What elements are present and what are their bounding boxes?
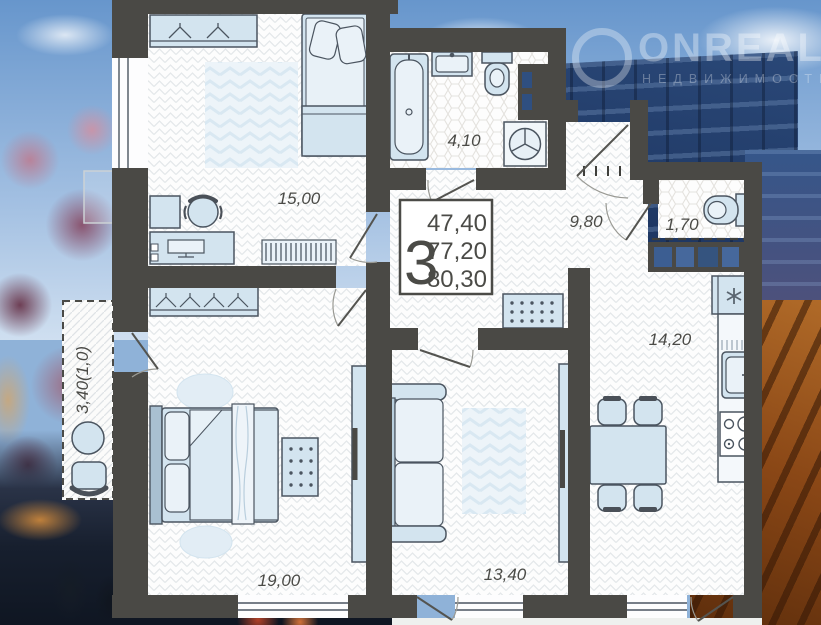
floor-plan: 15,00 4,10 9,80 1,70 14,20 19,00 13,40 3… <box>0 0 821 625</box>
rug-living-pattern <box>462 408 526 514</box>
toilet-bathroom <box>482 52 512 95</box>
label-bedroom-main: 19,00 <box>258 571 301 590</box>
fluffy-rug <box>177 374 233 410</box>
label-living: 13,40 <box>484 565 527 584</box>
toilet-wc <box>704 194 748 226</box>
area-usable: 77,20 <box>427 238 487 265</box>
window-basket-outline <box>84 171 113 223</box>
blanket-drape <box>232 404 254 524</box>
radiator <box>262 240 336 264</box>
tv-bedroom <box>353 428 358 480</box>
single-bed <box>302 14 368 156</box>
label-bedroom-top: 15,00 <box>278 189 321 208</box>
tv-living <box>560 430 565 488</box>
tv-unit-bedroom <box>352 366 367 562</box>
dining-table <box>590 426 666 484</box>
apartment-info-box: 3 47,40 77,20 80,30 <box>400 200 492 298</box>
balcony-chair <box>72 462 106 494</box>
wardrobe-main <box>150 284 258 316</box>
label-balcony: 3,40(1,0) <box>73 346 92 414</box>
label-kitchen: 14,20 <box>649 330 692 349</box>
balcony <box>62 171 114 500</box>
label-wc: 1,70 <box>665 215 699 234</box>
wardrobe <box>150 15 257 47</box>
dresser <box>282 438 318 496</box>
area-living: 47,40 <box>427 210 487 237</box>
balcony-table <box>72 422 104 454</box>
fluffy-rug <box>180 526 232 558</box>
area-total: 80,30 <box>427 266 487 293</box>
label-hallway: 9,80 <box>569 212 603 231</box>
double-bed <box>150 404 278 524</box>
washing-machine <box>504 122 546 166</box>
shoe-cabinet <box>503 294 563 328</box>
sink <box>432 52 472 76</box>
duct-shaft <box>518 64 548 120</box>
rug-pattern <box>205 62 298 168</box>
label-bathroom: 4,10 <box>447 131 481 150</box>
bathtub <box>390 54 428 160</box>
floorplan-listing-image: ONREAL НЕДВИЖИМОСТЬ <box>0 0 821 625</box>
